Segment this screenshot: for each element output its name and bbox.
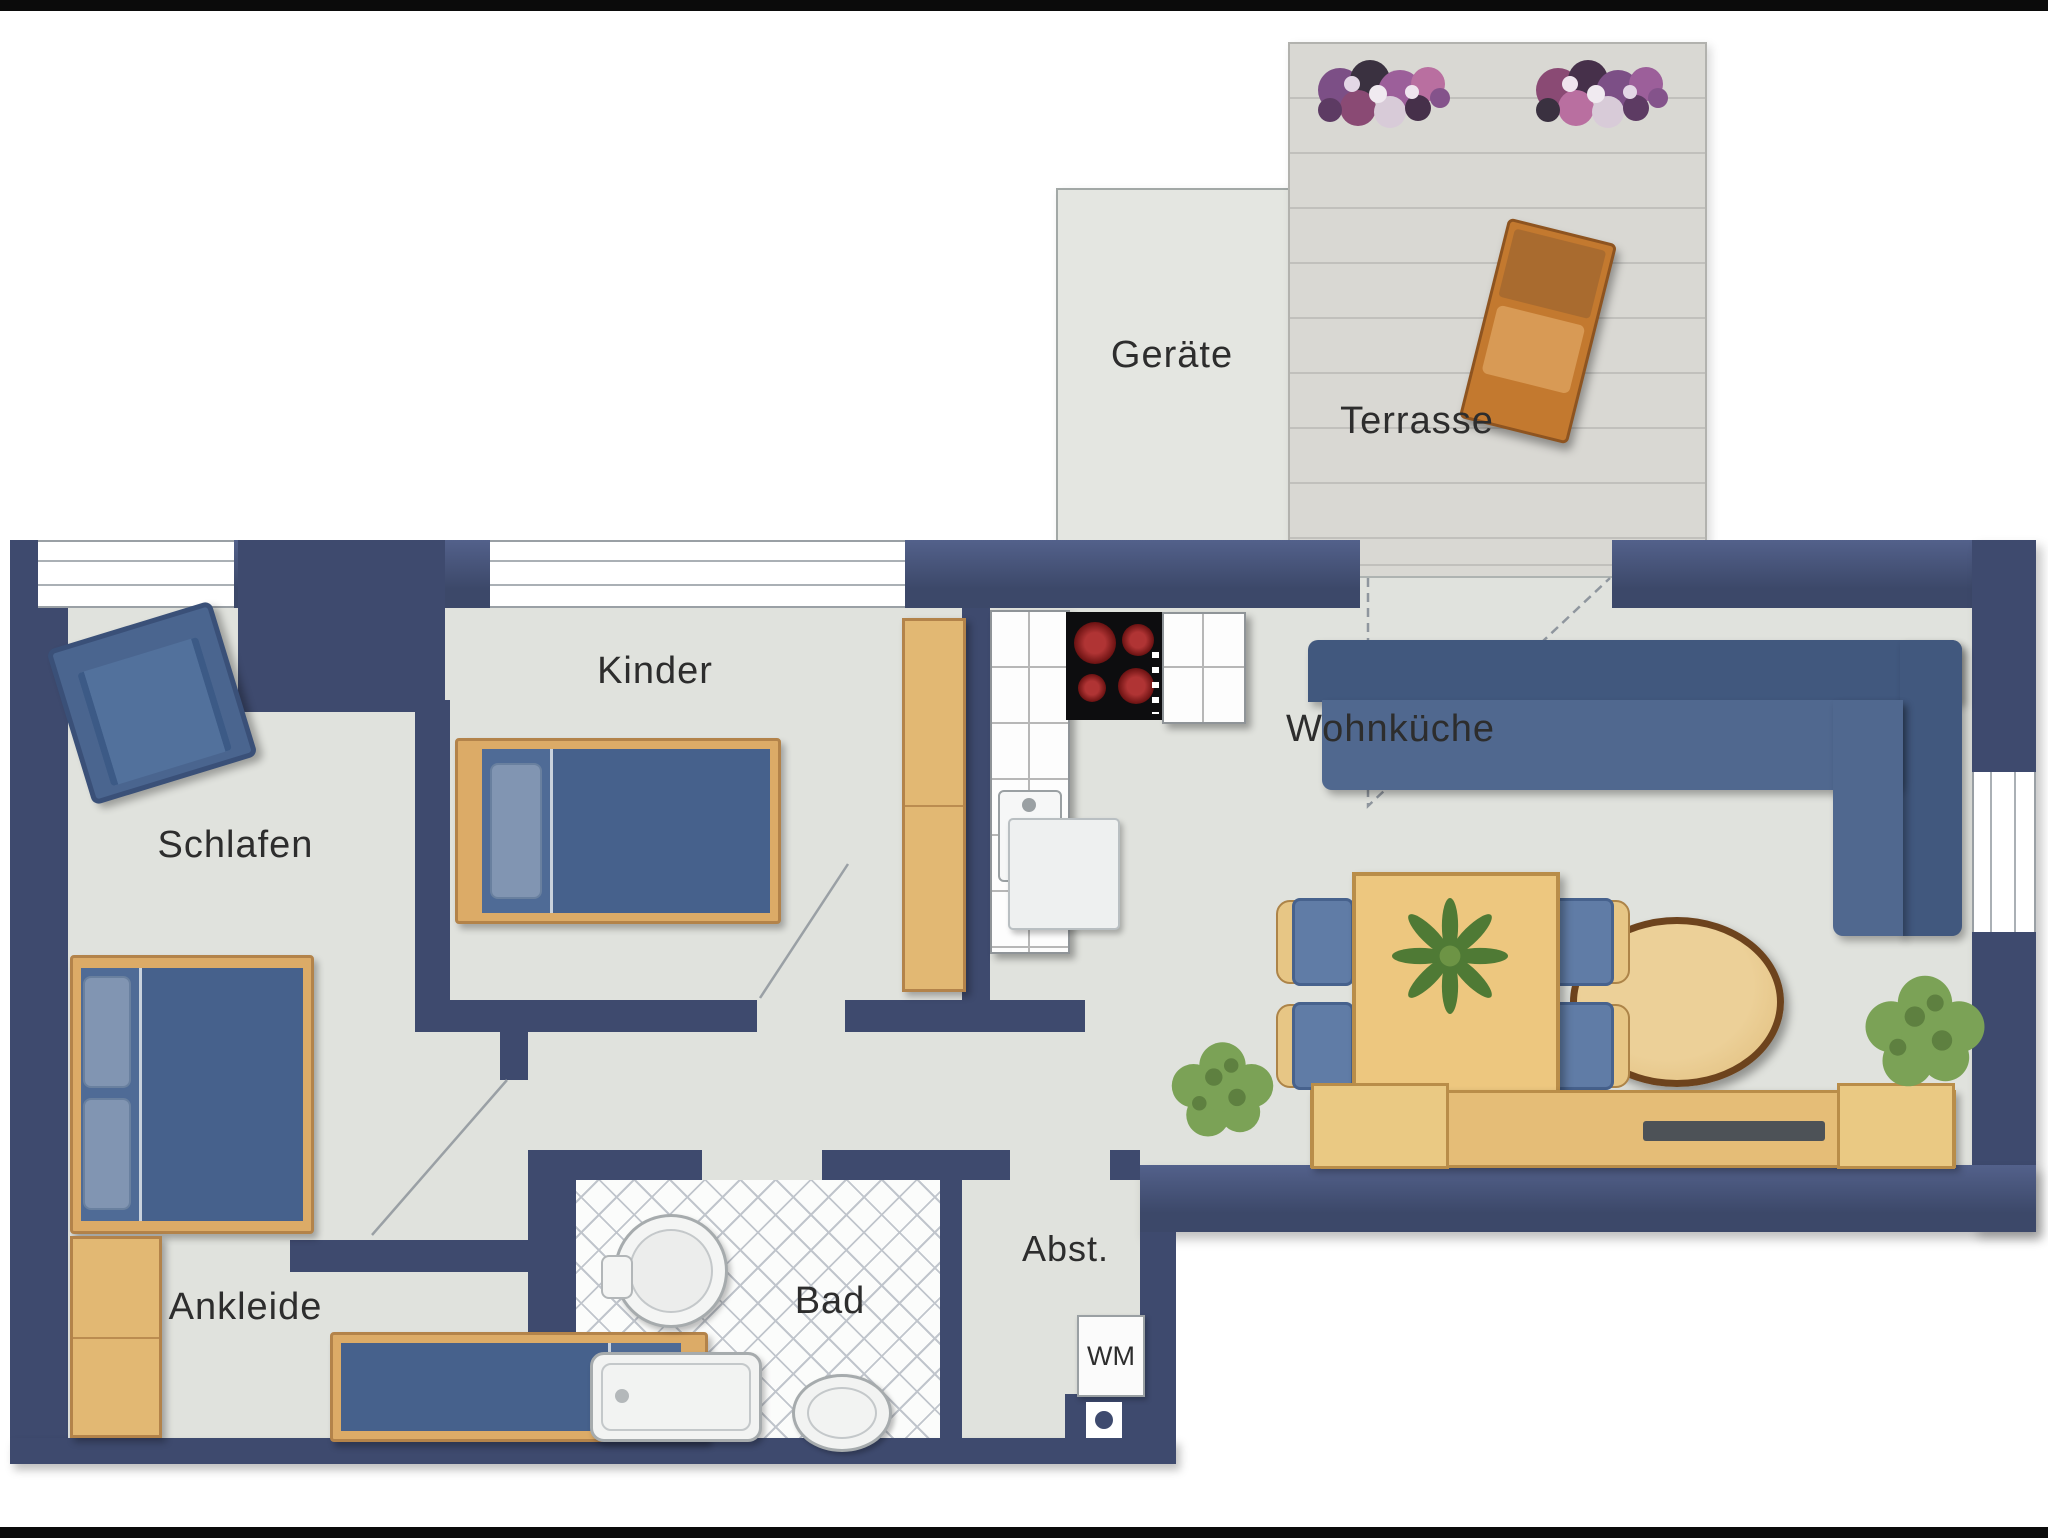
pillow <box>490 763 542 899</box>
room-label-terrasse: Terrasse <box>1292 400 1542 443</box>
room-label-bad: Bad <box>765 1280 895 1323</box>
potted-plant-icon <box>1150 1022 1295 1167</box>
double-bed-icon <box>70 955 314 1234</box>
corner-sofa-seat-icon <box>1833 700 1903 936</box>
sideboard-left-cabinet <box>1311 1083 1449 1169</box>
tv-icon <box>1643 1121 1825 1141</box>
shower-drain <box>615 1389 629 1403</box>
sink-tap <box>1022 798 1036 812</box>
pillow <box>83 976 131 1088</box>
washbasin-icon <box>614 1214 728 1328</box>
kitchen-counter-top-icon <box>1162 612 1246 724</box>
pillow <box>83 1098 131 1210</box>
room-label-schlafen: Schlafen <box>108 824 363 867</box>
toilet-bowl <box>807 1387 877 1439</box>
room-label-abst: Abst. <box>988 1228 1143 1270</box>
potted-plant-icon <box>1840 952 2010 1122</box>
dining-chair-icon <box>1552 898 1626 986</box>
single-bed-kinder-icon <box>455 738 781 924</box>
stove-controls <box>1152 652 1159 714</box>
armchair-seat <box>77 637 232 787</box>
room-label-wohnkueche: Wohnküche <box>1248 708 1533 751</box>
burner <box>1078 674 1106 702</box>
sink-basin <box>1008 818 1120 930</box>
chair-seat <box>1292 1002 1354 1090</box>
blanket <box>139 968 303 1221</box>
washing-machine-icon: WM <box>1077 1315 1145 1397</box>
floor-drain-icon <box>1086 1402 1122 1438</box>
basin-fitting <box>601 1255 633 1299</box>
dining-chair-icon <box>1280 898 1354 986</box>
blanket <box>341 1343 611 1431</box>
washing-machine-label: WM <box>1087 1341 1135 1372</box>
toilet-icon <box>792 1374 892 1452</box>
chair-seat <box>1292 898 1354 986</box>
wardrobe-divider <box>73 1337 159 1339</box>
burner <box>1122 624 1154 656</box>
table-plant-icon <box>1392 898 1508 1014</box>
wardrobe-divider <box>905 805 963 807</box>
room-label-kinder: Kinder <box>540 650 770 693</box>
corner-sofa-back-icon <box>1308 640 1962 702</box>
burner <box>1074 622 1116 664</box>
shower-tray-icon <box>590 1352 762 1442</box>
wardrobe-ankleide-icon <box>70 1236 162 1438</box>
blanket <box>550 749 770 913</box>
floor-drain-dot <box>1095 1411 1113 1429</box>
wardrobe-kinder-icon <box>902 618 966 992</box>
stove-icon <box>1066 612 1162 720</box>
kitchen-sink-icon <box>998 790 1062 882</box>
chair-seat <box>1552 1002 1614 1090</box>
corner-sofa-back-icon <box>1900 640 1962 936</box>
floor-plan: WM Geräte Terrasse Schlafen Kinder Wohnk… <box>0 0 2048 1538</box>
room-label-geraete: Geräte <box>1056 334 1288 377</box>
chair-seat <box>1552 898 1614 986</box>
dining-chair-icon <box>1552 1002 1626 1090</box>
basin-bowl <box>629 1229 713 1313</box>
room-label-ankleide: Ankleide <box>113 1286 378 1329</box>
burner <box>1118 668 1154 704</box>
